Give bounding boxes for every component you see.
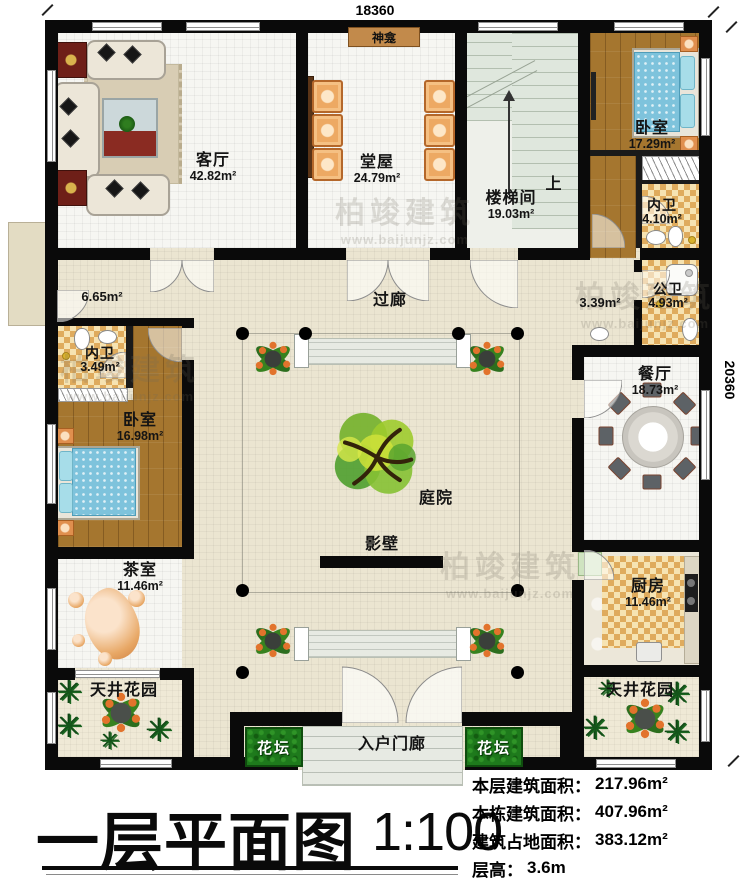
wall bbox=[572, 418, 584, 540]
porch-steps bbox=[302, 726, 463, 786]
window bbox=[614, 22, 684, 31]
room-label-dining: 餐厅18.73m² bbox=[632, 366, 679, 397]
room-label-bedroom-l: 卧室16.98m² bbox=[117, 412, 164, 443]
wall bbox=[296, 20, 308, 260]
flowerbed-right: 花坛 bbox=[465, 727, 523, 767]
wall bbox=[45, 547, 194, 559]
wall bbox=[518, 248, 590, 260]
sink bbox=[98, 330, 117, 344]
stair-steps bbox=[467, 33, 512, 121]
wall bbox=[572, 345, 712, 357]
wardrobe-tr bbox=[642, 156, 701, 183]
double-door-living bbox=[150, 260, 214, 292]
window bbox=[47, 588, 56, 650]
column bbox=[299, 327, 312, 340]
drain-icon bbox=[688, 236, 696, 244]
label-courtyard: 庭院 bbox=[419, 490, 453, 508]
wall bbox=[45, 248, 150, 260]
stat-value: 217.96m² bbox=[595, 774, 668, 794]
room-label-patio-r: 天井花园 bbox=[606, 682, 674, 700]
sofa bbox=[54, 82, 100, 178]
floor-plan-canvas: 18360 20360 bbox=[0, 0, 750, 890]
door-kitchen bbox=[584, 550, 614, 580]
column bbox=[511, 327, 524, 340]
patio-planter bbox=[622, 694, 668, 744]
wall bbox=[560, 726, 574, 770]
tea-stool bbox=[98, 652, 112, 666]
wall bbox=[578, 20, 590, 260]
label-balcony-area: 6.65m² bbox=[81, 290, 122, 304]
door-stairwell bbox=[470, 260, 518, 308]
table-plant-icon bbox=[119, 116, 135, 132]
stat-value: 3.6m bbox=[527, 858, 566, 878]
stat-label: 本层建筑面积： bbox=[472, 772, 591, 797]
wall bbox=[640, 248, 712, 260]
shrine-box: 神龛 bbox=[348, 27, 420, 47]
shrine-label: 神龛 bbox=[372, 29, 396, 46]
potted-plant bbox=[252, 618, 294, 664]
nightstand bbox=[56, 520, 74, 536]
window bbox=[100, 759, 172, 768]
stat-label: 本栋建筑面积： bbox=[472, 800, 591, 825]
room-label-stairwell: 楼梯间19.03m² bbox=[485, 190, 536, 221]
dining-chair bbox=[643, 475, 662, 490]
fern-plant-icon: ✳ bbox=[56, 676, 83, 708]
fern-plant-icon: ✳ bbox=[146, 714, 173, 746]
flowerbed-label: 花坛 bbox=[257, 737, 291, 758]
window bbox=[92, 22, 162, 31]
end-table bbox=[55, 42, 87, 78]
stair-direction-line bbox=[508, 100, 510, 195]
label-vestibule-area: 3.39m² bbox=[579, 296, 620, 310]
room-label-patio-l: 天井花园 bbox=[90, 682, 158, 700]
wall bbox=[182, 668, 194, 770]
watermark: 柏竣建筑www.baijunjz.com bbox=[335, 188, 475, 247]
window bbox=[701, 390, 710, 480]
window bbox=[47, 424, 56, 504]
toilet bbox=[668, 226, 683, 247]
dining-chair bbox=[599, 427, 614, 446]
flowerbed-left: 花坛 bbox=[245, 727, 303, 767]
label-corridor: 过廊 bbox=[373, 292, 407, 310]
wall bbox=[572, 345, 584, 380]
tea-stool bbox=[68, 592, 84, 608]
column bbox=[511, 666, 524, 679]
label-porch: 入户门廊 bbox=[358, 736, 426, 754]
wall bbox=[642, 180, 699, 184]
corridor-bridge-top bbox=[302, 338, 463, 365]
watermark: 柏竣建筑www.baijunjz.com bbox=[440, 542, 580, 601]
room-label-tangwu: 堂屋24.79m² bbox=[354, 154, 401, 185]
potted-plant bbox=[466, 618, 508, 664]
room-label-neiwei-l: 内卫3.49m² bbox=[80, 346, 120, 375]
fern-plant-icon: ✳ bbox=[664, 716, 691, 748]
wall bbox=[572, 665, 712, 677]
tea-stool bbox=[72, 634, 85, 647]
stat-value: 407.96m² bbox=[595, 802, 668, 822]
entrance-double-door bbox=[342, 666, 462, 723]
room-label-living: 客厅42.82m² bbox=[190, 152, 237, 183]
column bbox=[452, 327, 465, 340]
window bbox=[47, 70, 56, 162]
hall-chair bbox=[312, 114, 343, 147]
side-balcony bbox=[8, 222, 48, 326]
sofa bbox=[86, 40, 166, 80]
corridor-bridge-bottom bbox=[302, 630, 463, 658]
dining-table bbox=[622, 406, 684, 468]
room-label-bedroom-tr: 卧室17.29m² bbox=[629, 120, 676, 151]
stat-row: 层高：3.6m bbox=[472, 854, 668, 882]
window bbox=[186, 22, 260, 31]
stats-block: 本层建筑面积：217.96m² 本栋建筑面积：407.96m² 建筑占地面积：3… bbox=[472, 770, 668, 882]
dimension-top: 18360 bbox=[340, 2, 410, 18]
hall-chair bbox=[312, 80, 343, 113]
room-label-gongwei: 公卫4.93m² bbox=[648, 282, 688, 311]
dim-tick bbox=[41, 4, 53, 16]
wall bbox=[45, 668, 75, 680]
stat-label: 建筑占地面积： bbox=[472, 828, 591, 853]
label-screen-wall: 影壁 bbox=[365, 536, 399, 554]
door-dining bbox=[584, 380, 622, 418]
room-label-kitchen: 厨房11.46m² bbox=[625, 578, 671, 609]
sink bbox=[646, 230, 666, 245]
fern-plant-icon: ✳ bbox=[56, 710, 83, 742]
fern-plant-icon: ✳ bbox=[582, 712, 609, 744]
stat-label: 层高： bbox=[472, 856, 523, 881]
potted-plant bbox=[466, 336, 508, 382]
window bbox=[596, 759, 676, 768]
stat-value: 383.12m² bbox=[595, 830, 668, 850]
wall bbox=[634, 260, 642, 272]
title-underline bbox=[42, 866, 458, 870]
bed-pillow bbox=[59, 483, 73, 513]
room-label-neiwei-tr: 内卫4.10m² bbox=[642, 198, 682, 227]
bed-mattress bbox=[72, 448, 136, 516]
kitchen-sink bbox=[636, 642, 662, 662]
fern-plant-icon: ✳ bbox=[100, 730, 120, 754]
stair-arrow-icon bbox=[503, 90, 515, 101]
wall bbox=[430, 248, 470, 260]
column bbox=[236, 666, 249, 679]
stat-row: 本栋建筑面积：407.96m² bbox=[472, 798, 668, 826]
stat-row: 本层建筑面积：217.96m² bbox=[472, 770, 668, 798]
window bbox=[701, 58, 710, 136]
column bbox=[236, 584, 249, 597]
screen-wall bbox=[320, 556, 443, 568]
dim-tick bbox=[725, 21, 737, 33]
room-label-tea: 茶室11.46m² bbox=[117, 562, 163, 593]
tv-icon bbox=[591, 72, 596, 120]
title-underline-thin bbox=[46, 874, 458, 875]
hall-chair bbox=[312, 148, 343, 181]
bed-pillow bbox=[680, 56, 695, 90]
bed-pillow bbox=[680, 94, 695, 128]
courtyard-tree bbox=[320, 398, 434, 512]
stove bbox=[685, 574, 698, 612]
hall-chair bbox=[424, 148, 455, 181]
wall bbox=[230, 726, 244, 770]
stat-row: 建筑占地面积：383.12m² bbox=[472, 826, 668, 854]
flowerbed-label: 花坛 bbox=[477, 737, 511, 758]
nightstand bbox=[680, 36, 698, 52]
bridge-post bbox=[294, 627, 309, 661]
wall bbox=[462, 712, 574, 726]
wall bbox=[214, 248, 346, 260]
bed-pillow bbox=[59, 451, 73, 481]
sofa-chaise bbox=[86, 174, 170, 216]
window bbox=[47, 692, 56, 744]
wall bbox=[182, 318, 194, 328]
potted-plant bbox=[252, 336, 294, 382]
sliding-door bbox=[75, 670, 160, 678]
hall-chair bbox=[424, 114, 455, 147]
column bbox=[236, 327, 249, 340]
dim-tick bbox=[727, 755, 739, 767]
door-bedroom-tr bbox=[592, 214, 625, 248]
end-table bbox=[55, 170, 87, 206]
window bbox=[701, 690, 710, 742]
nightstand bbox=[56, 428, 74, 444]
window bbox=[478, 22, 558, 31]
label-up: 上 bbox=[545, 176, 562, 194]
wall bbox=[230, 712, 342, 726]
dimension-right: 20360 bbox=[722, 350, 738, 410]
dim-tick bbox=[707, 6, 719, 18]
hall-chair bbox=[424, 80, 455, 113]
